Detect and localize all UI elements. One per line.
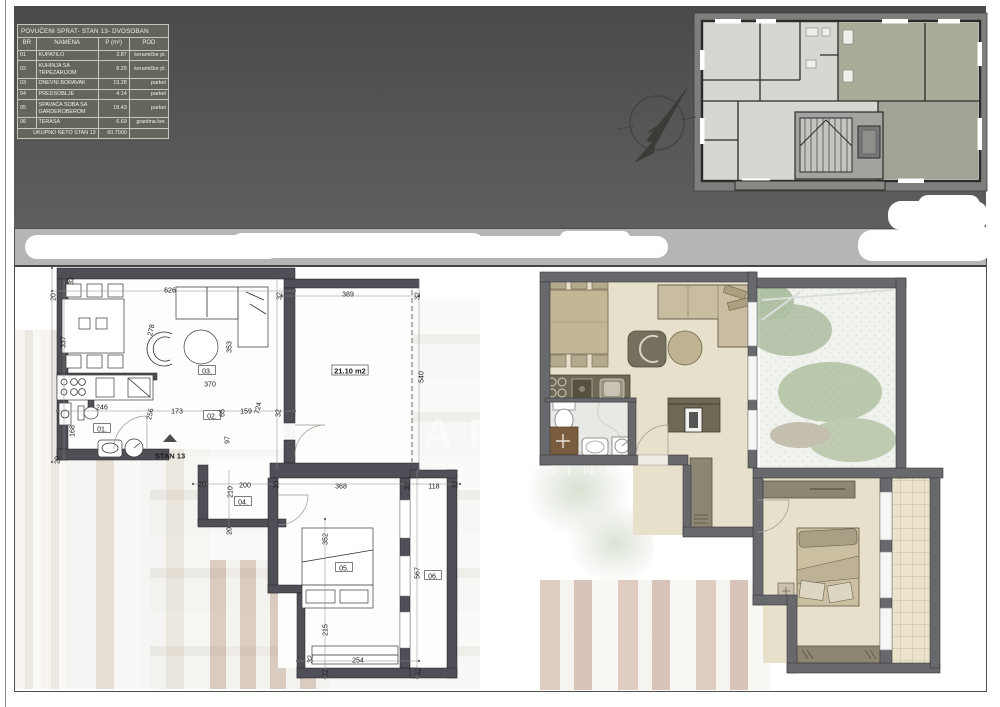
table-cell: KUPATILO bbox=[36, 50, 98, 61]
dimension-label: 352 bbox=[322, 533, 329, 545]
dimension-label: 567 bbox=[414, 567, 421, 579]
dimension-label: 10 bbox=[273, 481, 280, 489]
table-cell: parket bbox=[129, 78, 168, 89]
dimension-label: 32 bbox=[415, 668, 422, 676]
key-plan bbox=[694, 13, 987, 191]
column-header: BR bbox=[18, 38, 37, 51]
dimension-label: 200 bbox=[239, 482, 251, 489]
dimension-label: 32 bbox=[414, 292, 421, 300]
dimension-label: 20 bbox=[50, 293, 57, 301]
room-label: 05. bbox=[339, 565, 349, 572]
table-cell: keramičke pl. bbox=[129, 50, 168, 61]
table-row: 06TERASA6.69granitna ker. bbox=[18, 117, 169, 128]
table-cell: TERASA bbox=[36, 117, 98, 128]
table-row: 02KUHINJA SA TRPEZARIJOM8.29keramičke pl… bbox=[18, 61, 169, 79]
north-arrow-icon bbox=[618, 85, 696, 163]
room-label: 04. bbox=[238, 499, 248, 506]
total-label: UKUPNO NETO STAN 13 bbox=[18, 128, 99, 139]
dimension-label: 370 bbox=[204, 381, 216, 388]
armchair-render bbox=[628, 331, 666, 367]
dimension-label: 65 bbox=[219, 409, 226, 417]
redaction-blobs bbox=[25, 195, 992, 261]
tv-stand bbox=[668, 398, 720, 432]
table-cell: DNEVNI BORAVAK bbox=[36, 78, 98, 89]
table-cell: granitna ker. bbox=[129, 117, 168, 128]
dimension-label: 32 bbox=[276, 292, 283, 300]
coffee-table-render bbox=[668, 331, 702, 365]
table-cell: PREDSOBLJE bbox=[36, 89, 98, 100]
dimension-label: 168 bbox=[69, 425, 76, 437]
room-label: 02. bbox=[207, 413, 217, 420]
table-cell: 3.87 bbox=[98, 50, 129, 61]
table-cell: 04 bbox=[18, 89, 37, 100]
table-cell: SPAVAĆA SOBA SA GARDEROBEROM bbox=[36, 100, 98, 118]
dimension-label: 32 bbox=[452, 481, 459, 489]
dimension-label: 368 bbox=[335, 483, 347, 490]
empty-cell bbox=[129, 128, 168, 139]
coffee-table bbox=[184, 330, 218, 364]
drawing-sheet: ARTE NEKRETNINE bbox=[0, 0, 1000, 707]
room-area-table: BRNAMENAP (m²)POD 01KUPATILO3.87keramičk… bbox=[17, 37, 169, 139]
total-value: 60.7000 bbox=[98, 128, 129, 139]
dining-table bbox=[62, 284, 124, 368]
table-cell: 8.29 bbox=[98, 61, 129, 79]
dimension-label: 210 bbox=[227, 486, 234, 498]
dimension-label: 215 bbox=[322, 624, 329, 636]
small-terrace-floor bbox=[892, 478, 930, 663]
dimension-label: 540 bbox=[418, 371, 425, 383]
dimension-label: 246 bbox=[96, 404, 108, 411]
room-label: 21.10 m2 bbox=[334, 366, 366, 375]
room-label: 01. bbox=[97, 426, 107, 433]
entry-threshold bbox=[638, 455, 668, 465]
area-table: POVUČENI SPRAT- STAN 13- DVOSOBAN BRNAME… bbox=[17, 24, 169, 139]
key-plan-core bbox=[795, 112, 883, 179]
dimension-label: 159 bbox=[240, 408, 252, 415]
room-label: 06. bbox=[428, 573, 438, 580]
dimension-label: 353 bbox=[226, 341, 233, 353]
table-cell: keramičke pl. bbox=[129, 61, 168, 79]
table-row: 04PREDSOBLJE4.14parket bbox=[18, 89, 169, 100]
dimension-label: 118 bbox=[428, 483, 439, 490]
dimension-label: 626 bbox=[164, 287, 176, 294]
table-total-row: UKUPNO NETO STAN 1360.7000 bbox=[18, 128, 169, 139]
table-cell: 18.43 bbox=[98, 100, 129, 118]
key-plan-balcony bbox=[735, 181, 885, 190]
left-floor-plan: 3220626337278353389323254037003.02.24625… bbox=[50, 267, 461, 679]
table-cell: parket bbox=[129, 100, 168, 118]
table-row: 03DNEVNI BORAVAK19.28parket bbox=[18, 78, 169, 89]
dimension-label: 32 bbox=[68, 277, 75, 285]
dimension-label: 32 bbox=[404, 482, 411, 490]
table-cell: 03 bbox=[18, 78, 37, 89]
dimension-label: 20 bbox=[226, 527, 233, 535]
column-header: NAMENA bbox=[36, 38, 98, 51]
hall-wardrobe bbox=[690, 458, 712, 528]
dimension-label: 20 bbox=[54, 456, 61, 464]
table-cell: KUHINJA SA TRPEZARIJOM bbox=[36, 61, 98, 79]
dining-set bbox=[548, 277, 608, 367]
table-cell: 05 bbox=[18, 100, 37, 118]
table-title: POVUČENI SPRAT- STAN 13- DVOSOBAN bbox=[17, 24, 169, 37]
table-cell: parket bbox=[129, 89, 168, 100]
table-row: 05SPAVAĆA SOBA SA GARDEROBEROM18.43parke… bbox=[18, 100, 169, 118]
table-cell: 01 bbox=[18, 50, 37, 61]
table-cell: 6.69 bbox=[98, 117, 129, 128]
dimension-label: 389 bbox=[342, 291, 354, 298]
apartment-label: STAN 13 bbox=[155, 451, 185, 460]
dimension-label: 20 bbox=[198, 481, 206, 488]
dimension-label: 97 bbox=[224, 436, 231, 444]
kitchen-counter bbox=[57, 375, 153, 400]
dimension-label: 32 bbox=[322, 669, 329, 677]
table-cell: 4.14 bbox=[98, 89, 129, 100]
room-label: 03. bbox=[202, 368, 212, 375]
right-floor-plan bbox=[540, 272, 943, 673]
table-cell: 06 bbox=[18, 117, 37, 128]
table-cell: 19.28 bbox=[98, 78, 129, 89]
column-header: P (m²) bbox=[98, 38, 129, 51]
table-cell: 02 bbox=[18, 61, 37, 79]
table-row: 01KUPATILO3.87keramičke pl. bbox=[18, 50, 169, 61]
dimension-label: 254 bbox=[352, 657, 364, 664]
dimension-label: 173 bbox=[171, 408, 183, 415]
dimension-label: 337 bbox=[60, 336, 67, 348]
table-header: BRNAMENAP (m²)POD bbox=[18, 38, 169, 51]
dimension-label: 32 bbox=[307, 655, 314, 663]
dimension-label: 32 bbox=[275, 409, 282, 417]
column-header: POD bbox=[129, 38, 168, 51]
